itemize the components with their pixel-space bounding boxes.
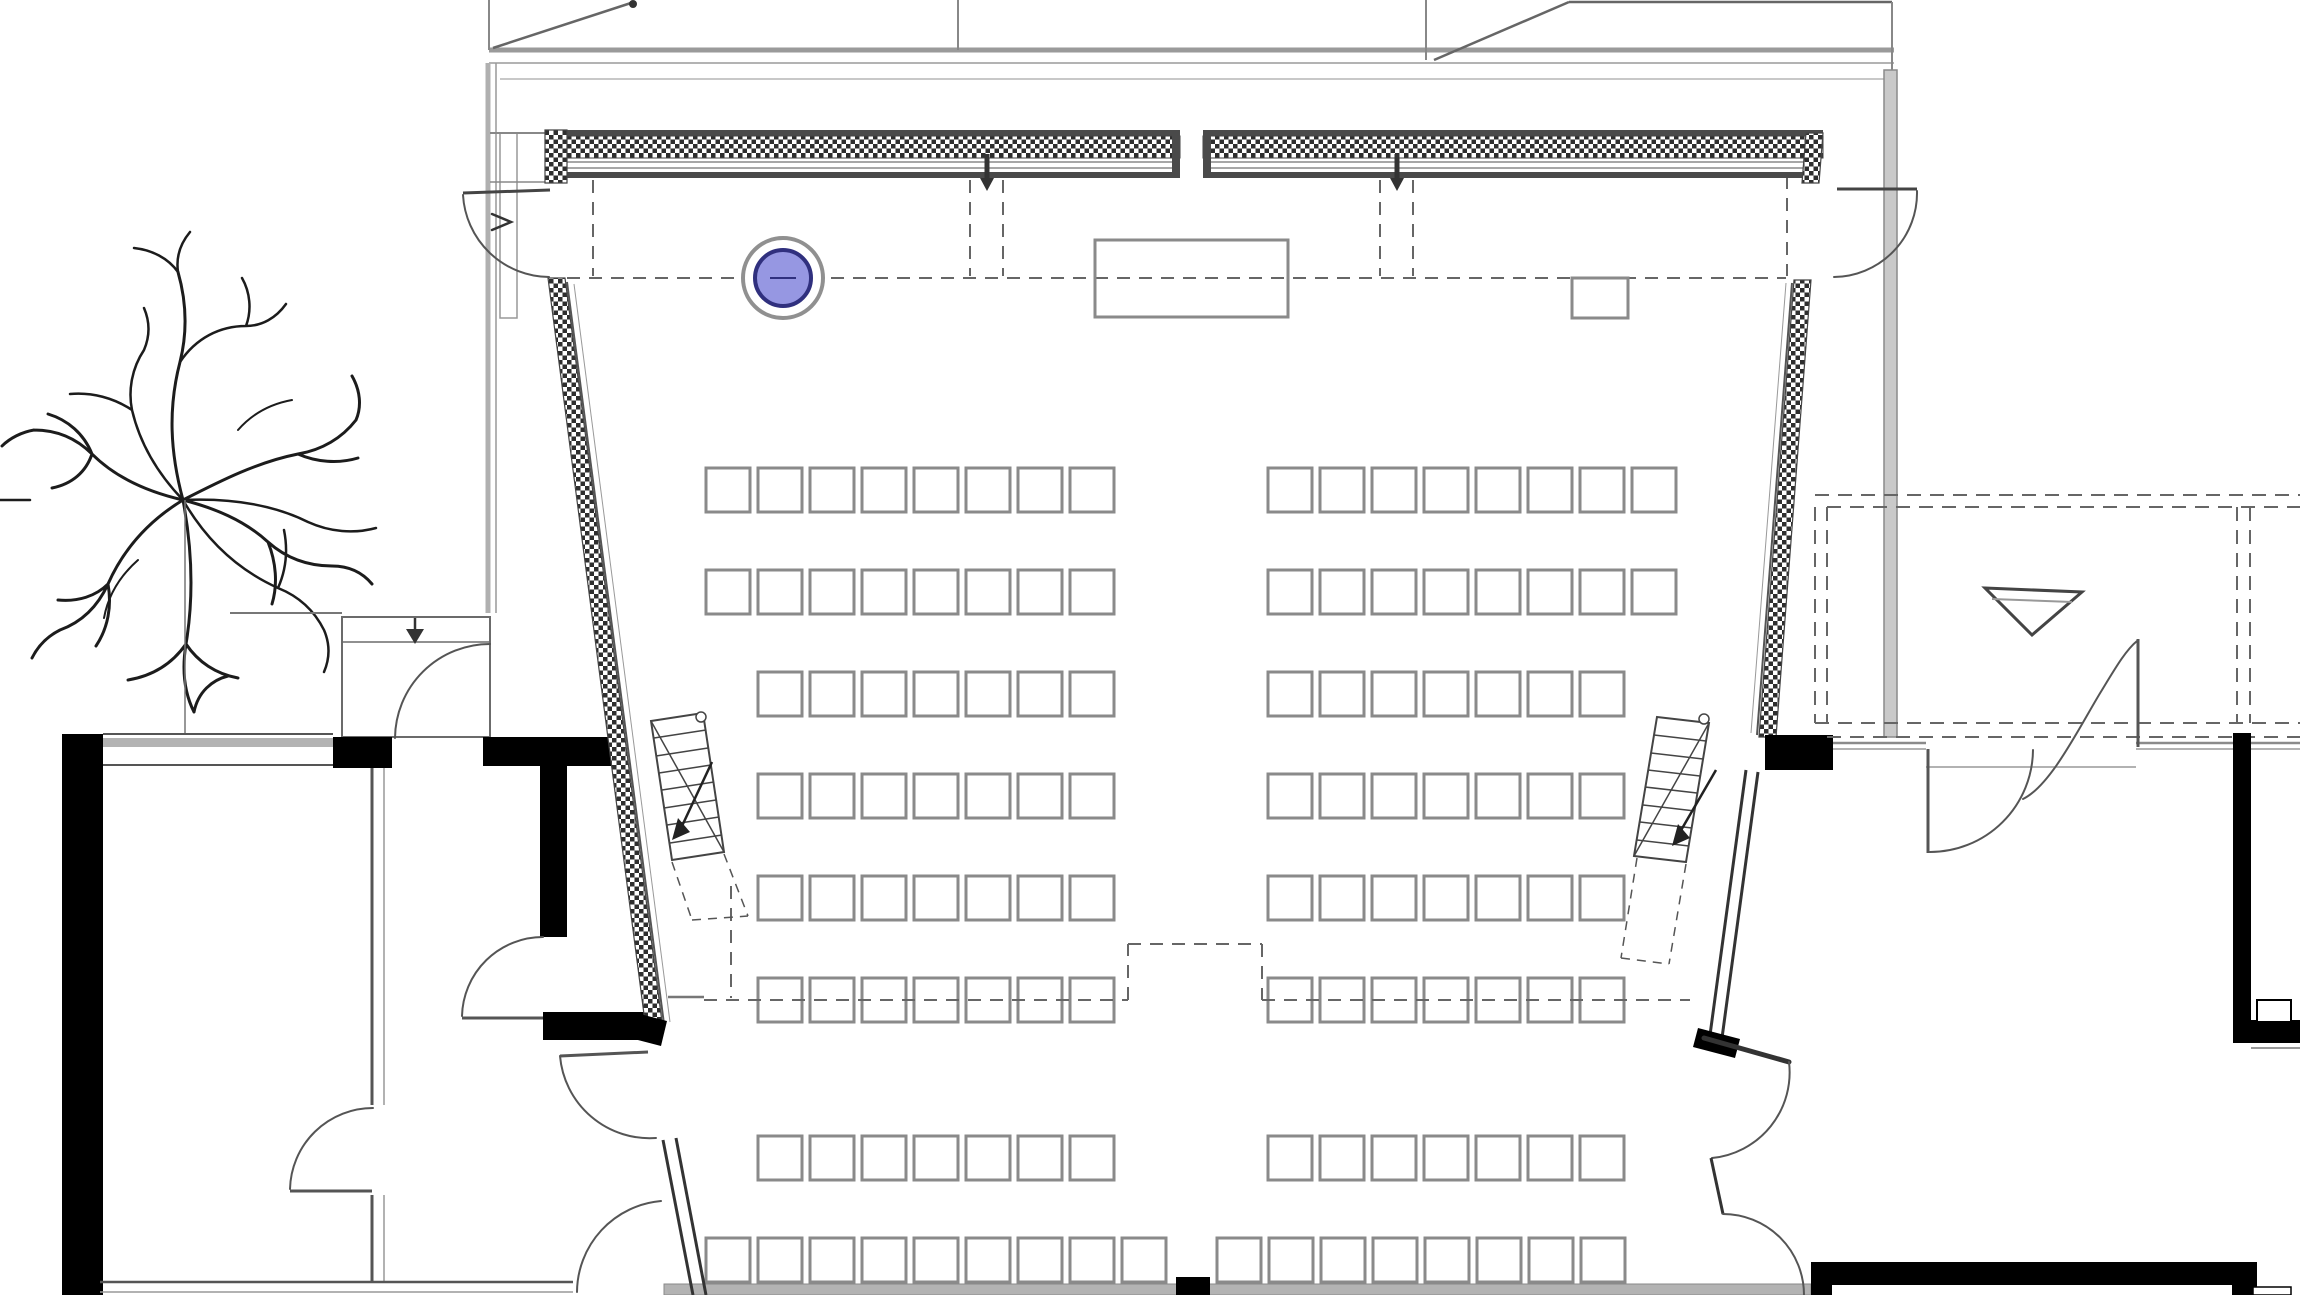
floor-plan-svg bbox=[0, 0, 2300, 1295]
seat bbox=[1372, 672, 1416, 716]
seat bbox=[862, 1136, 906, 1180]
seat bbox=[1018, 774, 1062, 818]
seat bbox=[1528, 1136, 1572, 1180]
seat bbox=[1070, 672, 1114, 716]
seat bbox=[862, 672, 906, 716]
seat bbox=[1424, 672, 1468, 716]
seat bbox=[1476, 774, 1520, 818]
seat bbox=[1528, 774, 1572, 818]
stairs-right-newel bbox=[1699, 714, 1709, 724]
seat bbox=[1372, 1136, 1416, 1180]
seat bbox=[1580, 570, 1624, 614]
seat bbox=[706, 1238, 750, 1282]
left-room-north-pier bbox=[333, 737, 392, 768]
seat bbox=[914, 468, 958, 512]
roof-node-dot bbox=[629, 0, 637, 8]
seat bbox=[1018, 468, 1062, 512]
seat bbox=[1320, 468, 1364, 512]
seat bbox=[1320, 876, 1364, 920]
seat bbox=[1476, 570, 1520, 614]
seat bbox=[1529, 1238, 1573, 1282]
seat bbox=[914, 1136, 958, 1180]
east-room-south-wall bbox=[2251, 1020, 2300, 1043]
seat bbox=[706, 468, 750, 512]
seat bbox=[1580, 876, 1624, 920]
seat bbox=[914, 1238, 958, 1282]
seat bbox=[914, 570, 958, 614]
seat bbox=[862, 570, 906, 614]
seat bbox=[914, 876, 958, 920]
seat bbox=[758, 876, 802, 920]
seat bbox=[1476, 672, 1520, 716]
seat bbox=[966, 774, 1010, 818]
seat bbox=[1476, 468, 1520, 512]
seat bbox=[1070, 1136, 1114, 1180]
seat bbox=[1476, 1136, 1520, 1180]
seat bbox=[810, 570, 854, 614]
seat bbox=[1320, 1136, 1364, 1180]
seat bbox=[1372, 774, 1416, 818]
seat bbox=[862, 774, 906, 818]
seat bbox=[1018, 570, 1062, 614]
seat bbox=[1070, 468, 1114, 512]
seat bbox=[1424, 468, 1468, 512]
stairs-left-newel bbox=[696, 712, 706, 722]
seat bbox=[1632, 570, 1676, 614]
seat bbox=[810, 672, 854, 716]
seat bbox=[810, 1238, 854, 1282]
seat bbox=[758, 468, 802, 512]
seat bbox=[1372, 876, 1416, 920]
wall-band-left-outer bbox=[545, 130, 1180, 136]
seat bbox=[966, 1136, 1010, 1180]
corridor-west-wall bbox=[1884, 70, 1897, 737]
right-wall-block bbox=[1765, 735, 1833, 770]
seat bbox=[1373, 1238, 1417, 1282]
seat bbox=[758, 1238, 802, 1282]
east-room-window bbox=[2257, 1000, 2291, 1022]
seat bbox=[1070, 570, 1114, 614]
seat bbox=[1424, 876, 1468, 920]
right-wall-corner-post bbox=[1802, 133, 1823, 183]
wall-band-left-checker bbox=[545, 136, 1180, 158]
seat bbox=[1632, 468, 1676, 512]
seat bbox=[1528, 570, 1572, 614]
seat bbox=[966, 876, 1010, 920]
seat bbox=[1320, 774, 1364, 818]
seat bbox=[1268, 468, 1312, 512]
seat bbox=[1070, 876, 1114, 920]
seat bbox=[1268, 876, 1312, 920]
seat bbox=[1580, 468, 1624, 512]
seat bbox=[1476, 876, 1520, 920]
seat bbox=[1528, 876, 1572, 920]
lobby-floor-band bbox=[664, 1284, 1811, 1295]
seat bbox=[1320, 672, 1364, 716]
seat bbox=[1424, 570, 1468, 614]
t-wall-stem bbox=[540, 766, 567, 937]
seat bbox=[966, 570, 1010, 614]
seat bbox=[758, 570, 802, 614]
seat bbox=[1321, 1238, 1365, 1282]
left-room-window-band bbox=[103, 738, 333, 747]
seat bbox=[1018, 672, 1062, 716]
east-room-pier bbox=[2233, 733, 2251, 1043]
seat bbox=[1070, 1238, 1114, 1282]
se-room-window bbox=[2253, 1287, 2291, 1295]
seat bbox=[1580, 1136, 1624, 1180]
lobby-wall-block bbox=[543, 1012, 650, 1040]
seat bbox=[1018, 876, 1062, 920]
seat bbox=[1425, 1238, 1469, 1282]
seat bbox=[966, 672, 1010, 716]
seat bbox=[1269, 1238, 1313, 1282]
left-wall-corner-post bbox=[545, 130, 567, 183]
se-room-west-pier bbox=[1811, 1285, 1832, 1295]
seat bbox=[1424, 1136, 1468, 1180]
seat bbox=[1268, 570, 1312, 614]
floor-plan-page bbox=[0, 0, 2300, 1295]
seat bbox=[914, 672, 958, 716]
seat bbox=[914, 774, 958, 818]
seat bbox=[1268, 672, 1312, 716]
seat bbox=[1528, 672, 1572, 716]
seat bbox=[1581, 1238, 1625, 1282]
seat bbox=[1477, 1238, 1521, 1282]
se-room-north-wall bbox=[1811, 1262, 2257, 1285]
seat bbox=[862, 1238, 906, 1282]
seat bbox=[810, 468, 854, 512]
seat bbox=[1320, 570, 1364, 614]
seat bbox=[810, 1136, 854, 1180]
seat bbox=[758, 1136, 802, 1180]
wall-band-left-face bbox=[557, 172, 1180, 178]
seat bbox=[810, 876, 854, 920]
seat bbox=[1580, 774, 1624, 818]
wall-band-right-outer bbox=[1203, 130, 1823, 136]
wall-band-right-checker bbox=[1203, 136, 1823, 158]
seat bbox=[706, 570, 750, 614]
seat bbox=[1372, 468, 1416, 512]
seat bbox=[1372, 570, 1416, 614]
seat bbox=[862, 468, 906, 512]
seat bbox=[1268, 1136, 1312, 1180]
seat bbox=[758, 672, 802, 716]
seat bbox=[1070, 774, 1114, 818]
wall-band-gap-cap-left bbox=[1172, 130, 1180, 178]
seat bbox=[1217, 1238, 1261, 1282]
seat bbox=[1268, 774, 1312, 818]
seat bbox=[1018, 1136, 1062, 1180]
seat bbox=[1580, 672, 1624, 716]
seat bbox=[1424, 774, 1468, 818]
seat bbox=[966, 468, 1010, 512]
center-bottom-pier bbox=[1176, 1277, 1210, 1295]
seat bbox=[758, 774, 802, 818]
seat bbox=[1018, 1238, 1062, 1282]
seat bbox=[862, 876, 906, 920]
t-wall-horizontal bbox=[483, 737, 617, 766]
left-room-west-wall bbox=[62, 734, 103, 1295]
plan-background bbox=[0, 0, 2300, 1295]
seat bbox=[810, 774, 854, 818]
wall-band-right-face bbox=[1203, 172, 1806, 178]
seat bbox=[966, 1238, 1010, 1282]
seat bbox=[1122, 1238, 1166, 1282]
wall-band-gap-cap-right bbox=[1203, 130, 1211, 178]
seat bbox=[1528, 468, 1572, 512]
